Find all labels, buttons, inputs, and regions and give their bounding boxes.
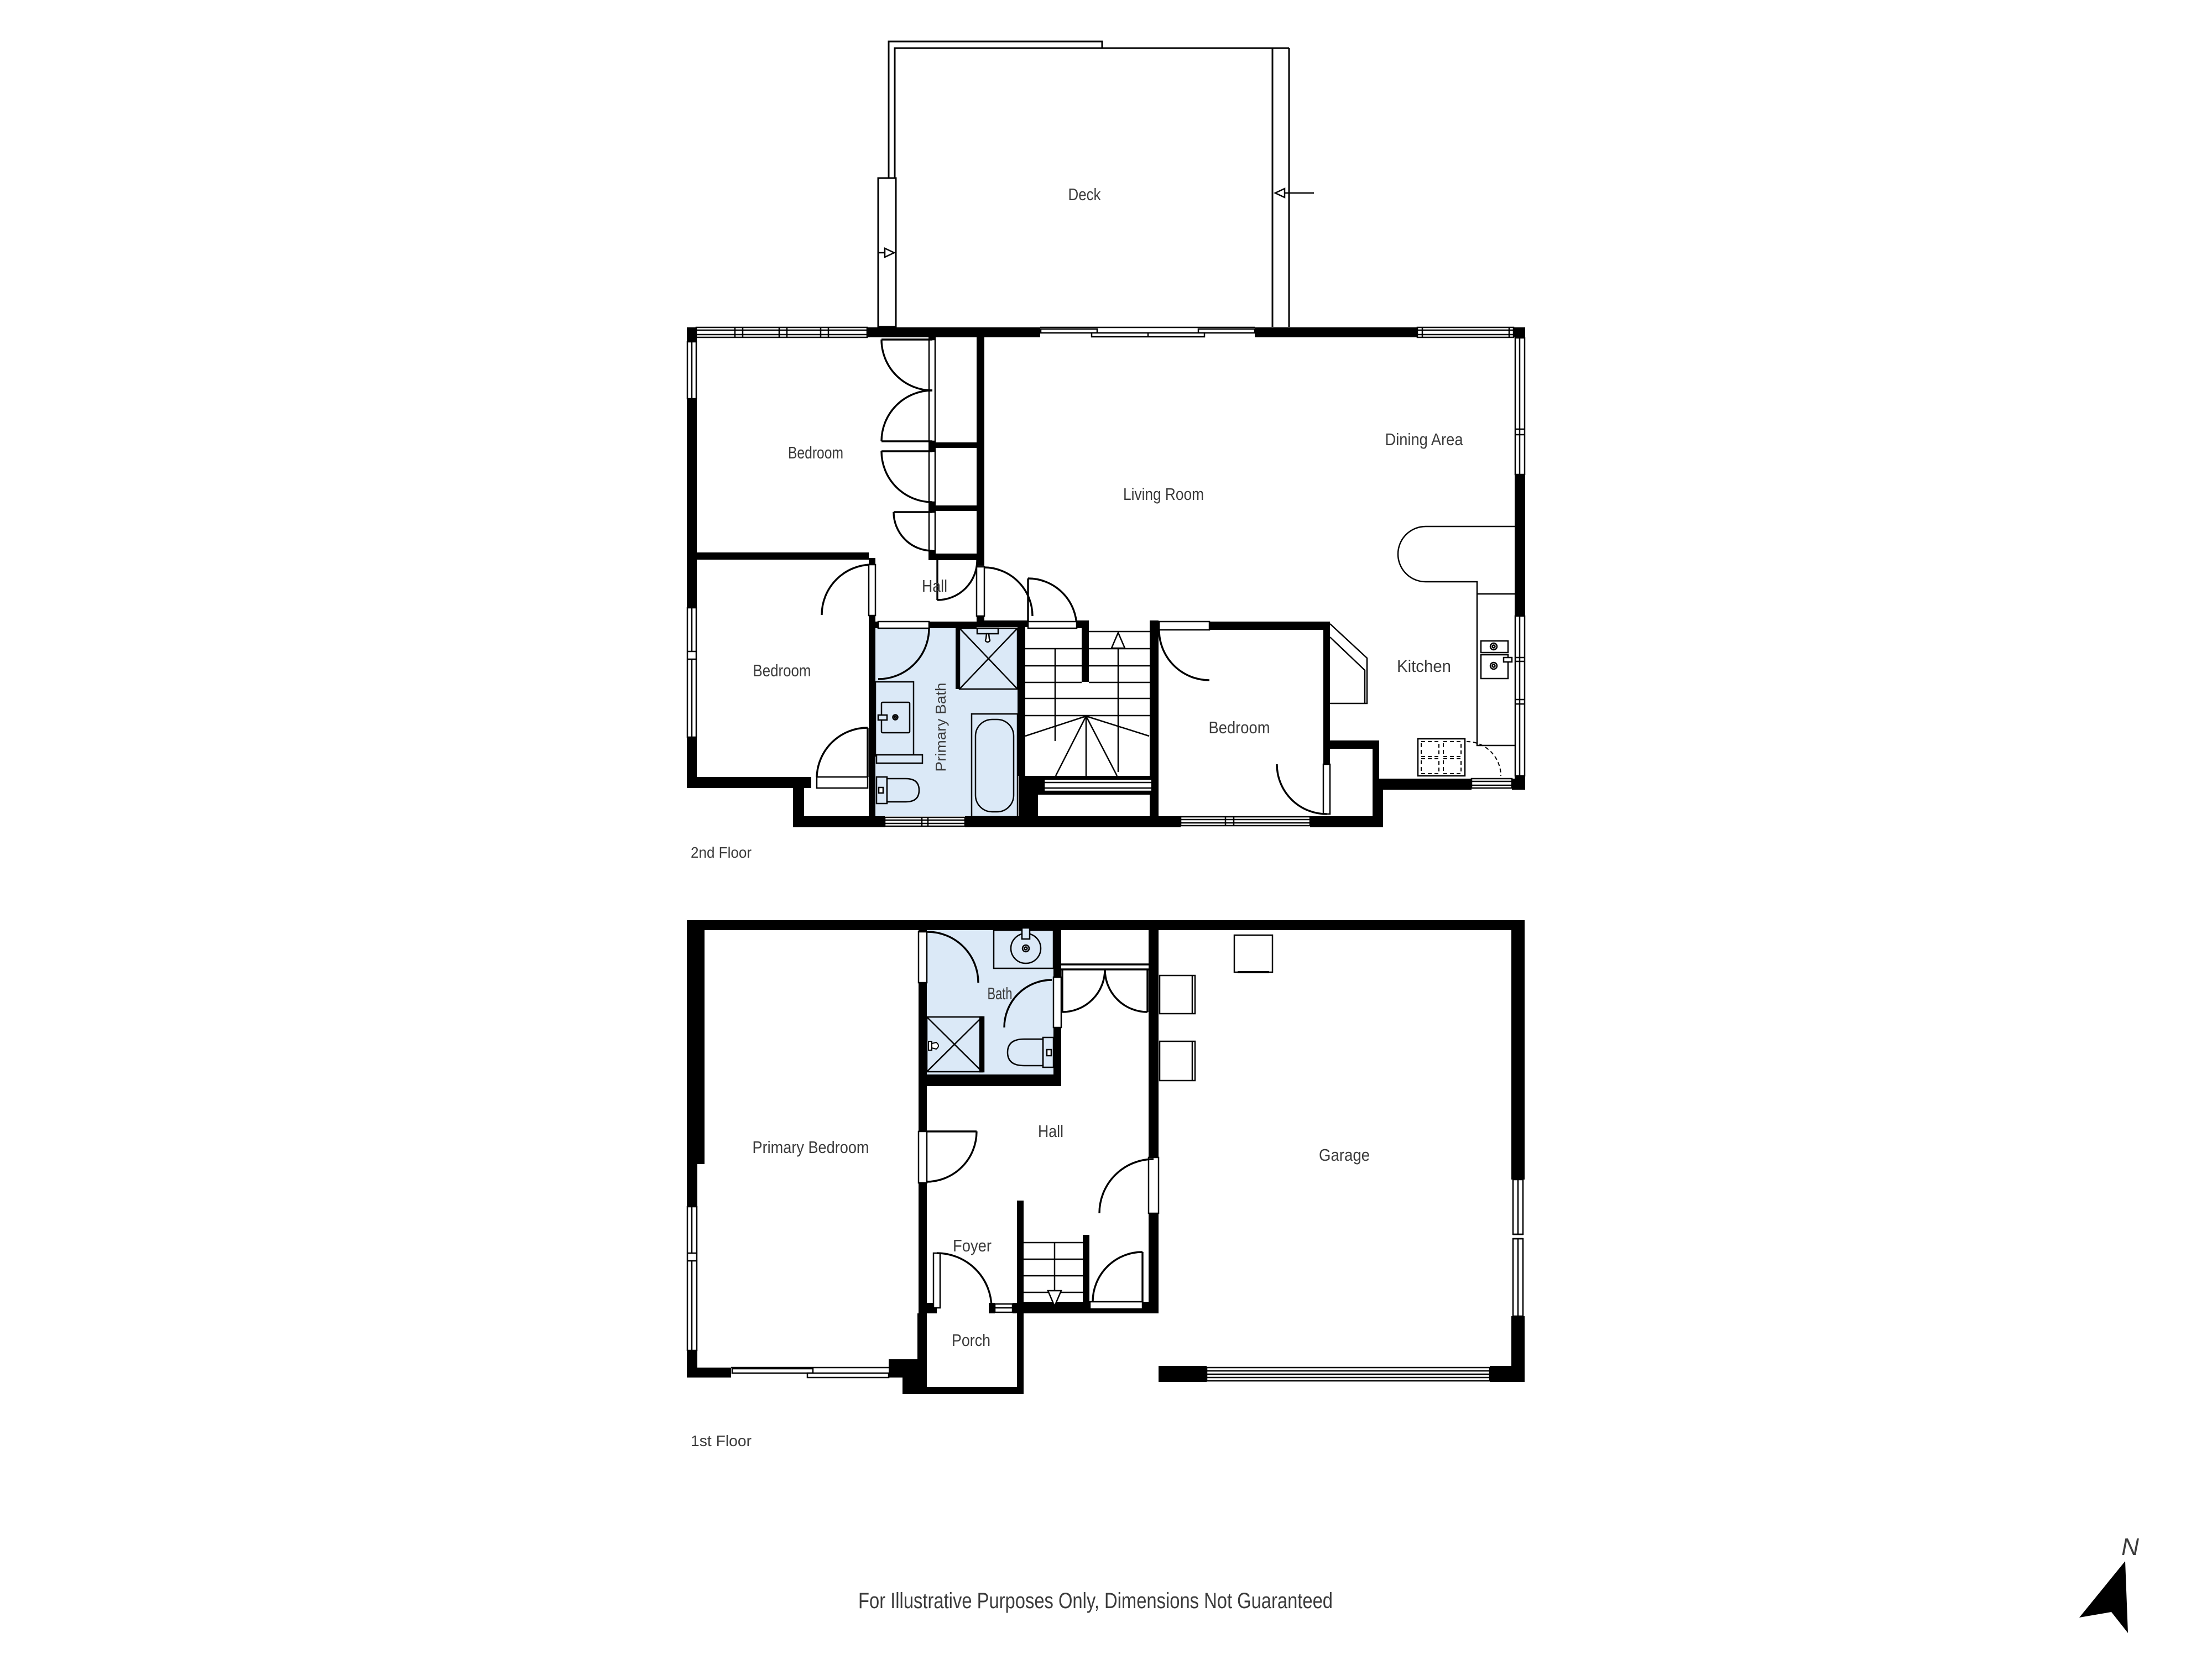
svg-text:Kitchen: Kitchen [1397,656,1451,676]
svg-text:For Illustrative Purposes Only: For Illustrative Purposes Only, Dimensio… [858,1589,1333,1613]
svg-text:2nd Floor: 2nd Floor [691,844,752,861]
svg-text:Bedroom: Bedroom [788,443,843,462]
svg-text:Living Room: Living Room [1123,484,1204,504]
svg-text:Hall: Hall [922,576,947,596]
svg-text:N: N [2121,1533,2139,1561]
svg-text:Garage: Garage [1319,1145,1370,1165]
svg-text:Bedroom: Bedroom [1209,718,1270,737]
svg-text:Deck: Deck [1068,185,1101,204]
svg-text:Primary Bedroom: Primary Bedroom [753,1138,869,1157]
svg-text:Primary Bath: Primary Bath [932,683,949,772]
svg-text:Hall: Hall [1038,1121,1063,1141]
svg-text:Porch: Porch [952,1331,990,1350]
svg-text:Dining Area: Dining Area [1385,430,1464,449]
svg-text:Bedroom: Bedroom [753,661,811,680]
svg-text:Bath: Bath [988,984,1013,1003]
svg-text:1st Floor: 1st Floor [691,1432,752,1449]
svg-text:Foyer: Foyer [953,1236,992,1255]
